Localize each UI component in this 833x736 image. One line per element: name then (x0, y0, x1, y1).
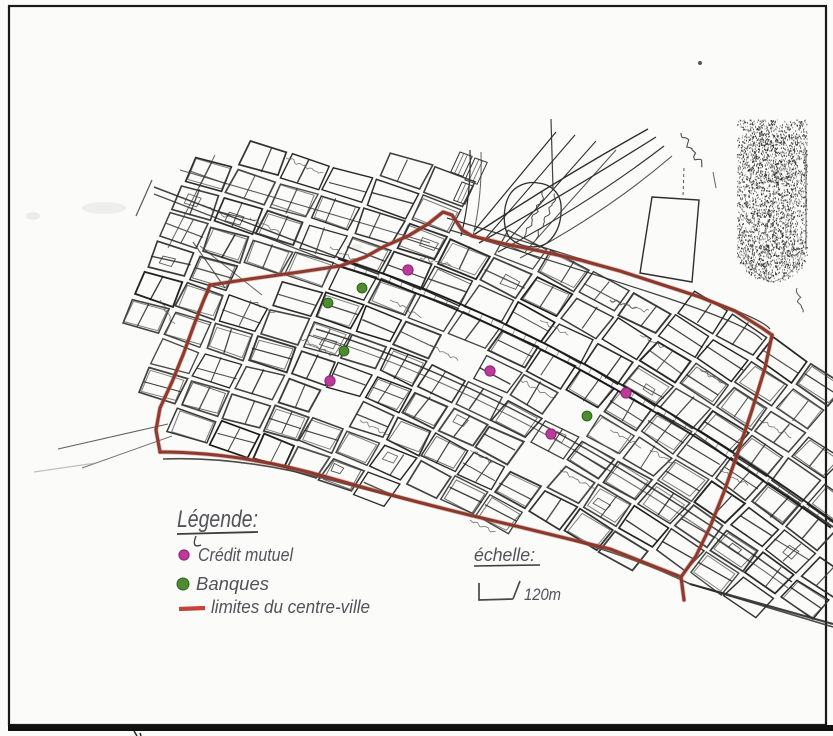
svg-text:Crédit mutuel: Crédit mutuel (198, 545, 294, 565)
svg-text:120m: 120m (524, 585, 561, 604)
svg-text:limites du centre-ville: limites du centre-ville (211, 597, 370, 617)
svg-text:Banques: Banques (196, 574, 269, 594)
svg-text:échelle:: échelle: (474, 545, 535, 565)
svg-text:Légende:: Légende: (177, 506, 258, 533)
